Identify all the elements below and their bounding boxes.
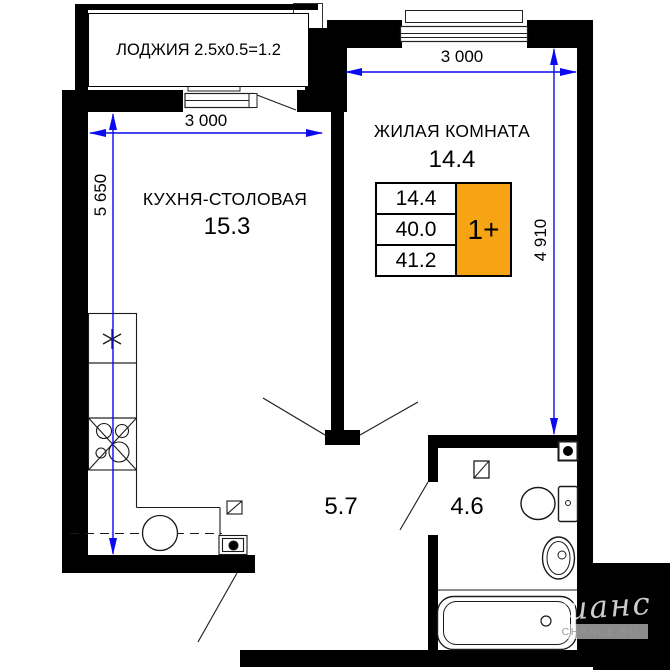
kitchen-room-area: 15.3 [162, 212, 292, 242]
arrow [345, 68, 362, 76]
info-total-area: 41.2 [377, 246, 455, 275]
balcony-door-jamb [249, 94, 257, 108]
burner-4 [109, 442, 129, 462]
wall-loggia-top [75, 4, 318, 10]
bathroom-door-swing [400, 482, 428, 530]
info-room-area: 14.4 [377, 184, 455, 215]
wall-living-top-left [337, 20, 402, 48]
wall-kitchen-top-left [88, 90, 183, 112]
floor-plan-drawing [0, 0, 670, 670]
living-window-sill [406, 11, 523, 23]
watermark-caption: CHANCE.RU [552, 624, 648, 639]
arrow [550, 48, 558, 65]
arrow [560, 68, 577, 76]
kitchen-room-name: КУХНЯ-СТОЛОВАЯ [100, 187, 350, 211]
electric-panel-diagonal [227, 501, 242, 514]
wall-middle-stub [325, 430, 360, 445]
arrow [550, 418, 558, 435]
wall-loggia-left [75, 4, 88, 90]
plan-type-badge: 1+ [455, 184, 510, 275]
burner-2 [116, 425, 129, 438]
bathroom-area: 4.6 [432, 491, 502, 523]
arrow [109, 538, 117, 555]
hallway-area: 5.7 [301, 491, 381, 523]
loggia-label: ЛОДЖИЯ 2.5x0.5=1.2 [88, 13, 309, 87]
living-window [401, 11, 528, 49]
wall-middle [331, 112, 344, 430]
info-table-values: 14.4 40.0 41.2 [377, 184, 455, 275]
kitchen-fixtures [70, 314, 247, 555]
toilet-tank [559, 487, 578, 522]
dim-kitchen-width: 3 000 [146, 111, 266, 131]
shaft-dot [229, 541, 238, 550]
toilet-bowl [521, 488, 555, 520]
floor-plan: ЛОДЖИЯ 2.5x0.5=1.2 КУХНЯ-СТОЛОВАЯ 15.3 Ж… [0, 0, 670, 670]
living-room-area: 14.4 [392, 145, 512, 175]
opening-break-left [263, 398, 325, 435]
hob-star-icon [103, 329, 121, 349]
arrow [306, 129, 323, 137]
washing-machine-diagonal [474, 461, 489, 478]
wall-bathroom-top [428, 435, 577, 448]
opening-break-right [360, 402, 418, 435]
entrance-door-swing [198, 573, 237, 642]
dim-living-height: 4 910 [531, 180, 551, 300]
living-room-name: ЖИЛАЯ КОМНАТА [347, 119, 557, 143]
vent-dot [563, 446, 573, 456]
wall-kitchen-top-right [297, 90, 331, 112]
wall-bottom [240, 650, 593, 667]
wall-bathroom-left-lower [428, 535, 438, 650]
arrow [109, 113, 117, 130]
walls [62, 4, 670, 670]
apartment-info-table: 14.4 40.0 41.2 1+ [375, 182, 512, 277]
wall-bathroom-left-upper [428, 448, 438, 482]
burner-1 [97, 424, 112, 439]
round-table [143, 516, 178, 551]
info-living-area: 40.0 [377, 215, 455, 246]
dim-living-width: 3 000 [402, 47, 522, 67]
wall-right [577, 20, 593, 667]
wall-kitchen-left [62, 90, 88, 573]
dim-kitchen-height: 5 650 [91, 135, 111, 255]
wall-kitchen-bottom [62, 555, 255, 573]
